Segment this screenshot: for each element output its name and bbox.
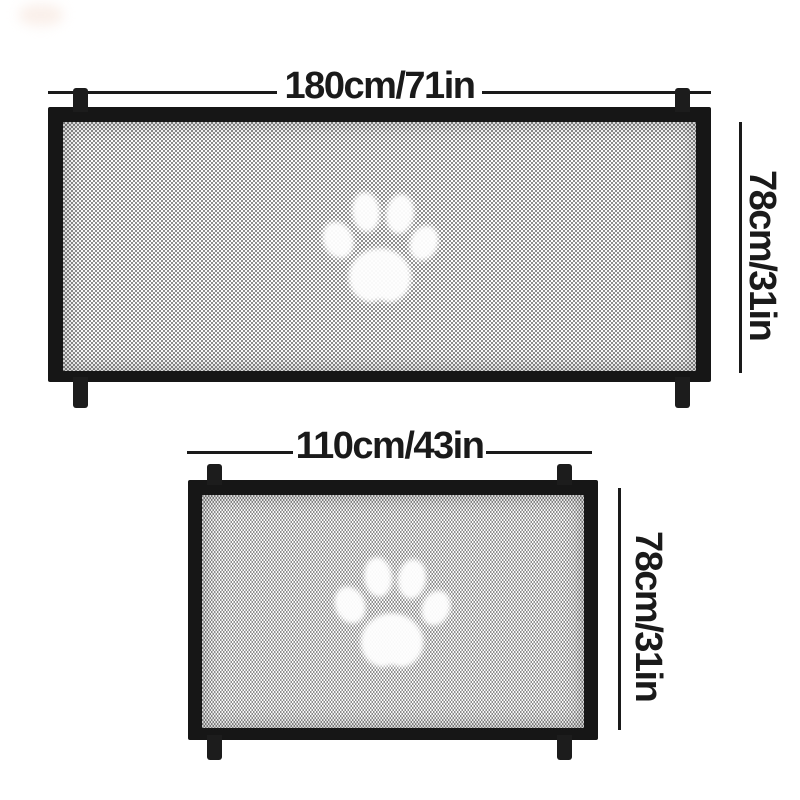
corner-smudge-artifact: [18, 4, 64, 26]
width-dimension-label-large: 180cm/71in: [285, 65, 475, 108]
product-size-diagram: 180cm/71in 78cm/31in 110cm/43in: [0, 0, 800, 800]
mounting-strap-top-right: [675, 88, 690, 112]
height-dimension-label-small: 78cm/31in: [626, 531, 670, 691]
large-gate-frame: [48, 107, 711, 382]
mounting-strap-bottom-right: [675, 377, 690, 408]
mesh-panel: [63, 122, 696, 371]
mounting-strap-top-left: [207, 464, 222, 485]
width-dimension-small: 110cm/43in: [187, 432, 592, 472]
mounting-strap-top-right: [557, 464, 572, 485]
mounting-strap-bottom-left: [73, 377, 88, 408]
height-dimension-label-large: 78cm/31in: [740, 170, 784, 330]
dimension-line-right: [486, 451, 592, 454]
width-dimension-large: 180cm/71in: [48, 72, 711, 112]
dimension-line-left: [187, 451, 293, 454]
mounting-strap-bottom-right: [557, 735, 572, 760]
height-dimension-line-small: [618, 488, 621, 730]
mounting-strap-top-left: [73, 88, 88, 112]
small-gate-frame: [188, 480, 598, 740]
width-dimension-label-small: 110cm/43in: [296, 425, 484, 468]
mounting-strap-bottom-left: [207, 735, 222, 760]
mesh-panel: [202, 495, 584, 728]
